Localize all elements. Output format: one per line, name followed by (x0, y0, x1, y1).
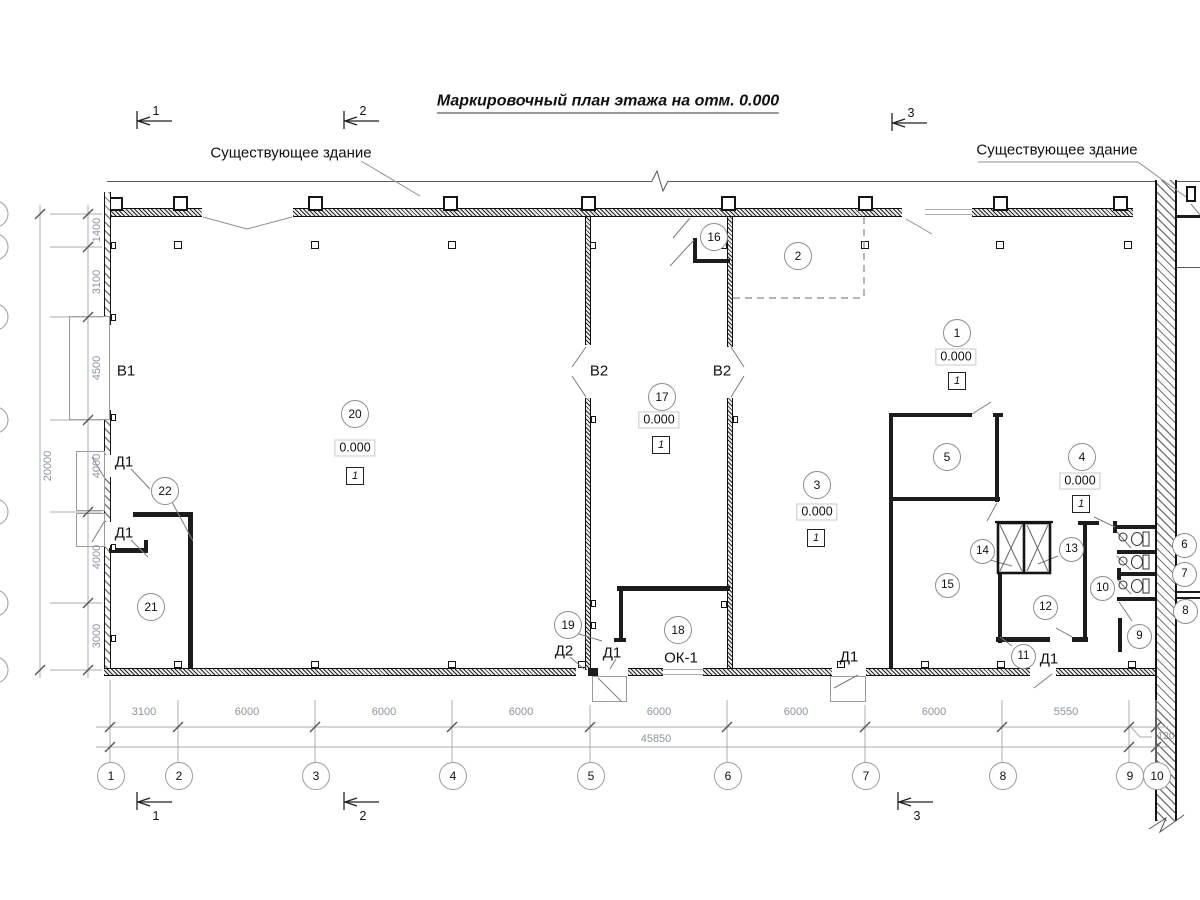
dim-segment: 1400 (91, 218, 103, 242)
room-number-6: 6 (1172, 533, 1197, 558)
pilaster (591, 416, 596, 423)
exterior-recess (69, 316, 110, 420)
wall (1117, 568, 1121, 580)
grid-axis-3: 3 (302, 762, 330, 790)
grid-axis-9: 9 (1116, 762, 1144, 790)
column-mark (109, 197, 123, 211)
pilaster (448, 661, 456, 668)
drawing-title: Маркировочный план этажа на отм. 0.000 (437, 93, 779, 114)
floor-type-mark: 1 (807, 529, 825, 547)
section-number-3-top: 3 (908, 106, 915, 120)
floor-type-mark: 1 (948, 372, 966, 390)
column-mark (993, 196, 1008, 211)
wall (1113, 525, 1155, 529)
wall (144, 540, 148, 553)
door-swings (92, 204, 1200, 701)
grid-axis-4: 4 (439, 762, 467, 790)
dim-segment: 6000 (372, 706, 396, 718)
wall (188, 512, 193, 670)
dim-segment: 4000 (91, 545, 103, 569)
room-number-21: 21 (137, 593, 165, 621)
grid-axis-7: 7 (852, 762, 880, 790)
wall (1117, 597, 1155, 601)
wall (614, 638, 626, 642)
dim-segment: 6000 (922, 706, 946, 718)
wall (104, 545, 111, 675)
dim-segment: 6000 (235, 706, 259, 718)
door-stoop (76, 513, 105, 547)
wall (995, 415, 999, 502)
pilaster (111, 414, 116, 421)
window-line (663, 669, 703, 670)
wall (1083, 525, 1087, 642)
window-label-v2: В2 (713, 363, 731, 380)
grid-axis-10: 10 (1143, 762, 1171, 790)
floor-type-mark: 1 (652, 436, 670, 454)
existing-building-line (107, 181, 652, 182)
existing-building-label-left: Существующее здание (210, 145, 371, 162)
room-number-19: 19 (554, 611, 582, 639)
wall (1113, 521, 1117, 533)
section-number-1-top: 1 (153, 104, 160, 118)
wall (619, 591, 623, 642)
window-label-v1: В1 (117, 363, 135, 380)
room-number-5: 5 (933, 443, 961, 471)
room-number-10: 10 (1090, 576, 1115, 601)
wall (703, 668, 832, 676)
pilaster (111, 544, 116, 551)
column-mark (174, 241, 182, 249)
wall (1117, 572, 1155, 576)
wc-fixtures (1119, 532, 1149, 593)
door-label-d1: Д1 (603, 645, 622, 662)
wall (1117, 550, 1155, 554)
window-label-ok1: ОК-1 (664, 650, 698, 667)
pilaster (590, 242, 596, 249)
elevation-mark: 0.000 (638, 412, 679, 429)
room-number-16: 16 (700, 223, 728, 251)
column-mark (311, 241, 319, 249)
dim-wall-offset: 120 (1157, 730, 1175, 742)
column-mark (861, 241, 869, 249)
wall (104, 668, 576, 676)
dim-segment: 3100 (91, 270, 103, 294)
wall (588, 668, 598, 676)
section-number-1-bottom: 1 (153, 809, 160, 823)
room-number-8: 8 (1173, 599, 1198, 624)
pilaster (111, 242, 116, 249)
wall (889, 413, 893, 670)
wall (628, 668, 663, 676)
wall (693, 259, 730, 263)
floorplan-sheet: Маркировочный план этажа на отм. 0.000 С… (0, 0, 1200, 900)
window-line (925, 214, 972, 215)
wall (104, 192, 111, 325)
pilaster (733, 416, 738, 423)
dim-segment: 4500 (91, 356, 103, 380)
door-jamb (1186, 186, 1196, 202)
door-stoop (592, 676, 627, 702)
pilaster (311, 661, 319, 668)
pilaster (1128, 661, 1136, 668)
existing-building-wall (1155, 180, 1177, 821)
wall (293, 208, 902, 217)
dim-segment: 5550 (1054, 706, 1078, 718)
wall (1177, 215, 1200, 218)
vent-shafts (995, 522, 1053, 573)
room-number-3: 3 (803, 471, 831, 499)
wall (1177, 591, 1200, 593)
dim-segment: 3000 (91, 624, 103, 648)
grid-axis-1: 1 (97, 762, 125, 790)
dim-segment: 6000 (509, 706, 533, 718)
column-mark (721, 196, 736, 211)
section-number-3-bottom: 3 (914, 809, 921, 823)
grid-axis-6: 6 (714, 762, 742, 790)
pilaster (174, 661, 182, 668)
room-number-17: 17 (648, 383, 676, 411)
elevation-mark: 0.000 (334, 440, 375, 457)
pilaster (111, 314, 116, 321)
grid-axis-2: 2 (165, 762, 193, 790)
wall (133, 512, 192, 517)
wall (104, 477, 111, 522)
room-number-20: 20 (341, 400, 369, 428)
existing-building-line (668, 181, 1200, 182)
dim-segment: 6000 (647, 706, 671, 718)
door-label-d1: Д1 (115, 525, 134, 542)
left-grid-bubbles (0, 201, 8, 683)
wall (617, 586, 730, 591)
wall (1056, 668, 1155, 676)
room-number-4: 4 (1068, 443, 1096, 471)
door-label-d1: Д1 (840, 649, 859, 666)
column-mark (1113, 196, 1128, 211)
column-mark (996, 241, 1004, 249)
elevation-mark: 0.000 (1059, 473, 1100, 490)
grid-axis-8: 8 (989, 762, 1017, 790)
floor-type-mark: 1 (346, 467, 364, 485)
room-number-18: 18 (664, 616, 692, 644)
elevation-mark: 0.000 (935, 349, 976, 366)
grid-axis-5: 5 (577, 762, 605, 790)
wall (1118, 618, 1122, 652)
pilaster (921, 661, 929, 668)
wall (996, 637, 1050, 642)
pilaster (111, 635, 116, 642)
leader-lines (203, 161, 1186, 234)
wall (889, 413, 972, 417)
wall-line (1177, 267, 1200, 268)
pilaster (591, 600, 596, 607)
wall (585, 398, 591, 670)
wall (1078, 521, 1099, 525)
column-mark (308, 196, 323, 211)
room-number-2: 2 (784, 242, 812, 270)
dim-segment: 3100 (132, 706, 156, 718)
door-label-d1: Д1 (1040, 651, 1059, 668)
column-mark (581, 196, 596, 211)
existing-building-label-right: Существующее здание (976, 142, 1137, 159)
pilaster (578, 661, 586, 668)
dim-segment: 4000 (91, 454, 103, 478)
column-mark (858, 196, 873, 211)
floor-type-mark: 1 (1072, 495, 1090, 513)
door-label-d2: Д2 (555, 643, 574, 660)
room-number-14: 14 (970, 539, 995, 564)
room-number-7: 7 (1172, 562, 1197, 587)
window-line (663, 674, 703, 675)
room-number-1: 1 (943, 319, 971, 347)
room-number-13: 13 (1059, 537, 1084, 562)
pilaster (997, 661, 1005, 668)
column-mark (1124, 241, 1132, 249)
dim-segment: 6000 (784, 706, 808, 718)
wall (585, 217, 591, 345)
column-mark (443, 196, 458, 211)
room-number-11: 11 (1011, 644, 1036, 669)
room-number-12: 12 (1033, 595, 1058, 620)
pilaster (591, 622, 596, 629)
column-mark (448, 241, 456, 249)
door-stoop (830, 676, 866, 702)
elevation-mark: 0.000 (796, 504, 837, 521)
wall (998, 572, 1002, 643)
section-number-2-top: 2 (360, 104, 367, 118)
wall (866, 668, 1030, 676)
dim-total: 20000 (42, 451, 54, 482)
door-label-d1: Д1 (115, 454, 134, 471)
room-number-15: 15 (935, 573, 960, 598)
window-line (925, 209, 972, 210)
wall (890, 497, 1000, 501)
section-number-2-bottom: 2 (360, 809, 367, 823)
room-number-9: 9 (1127, 624, 1152, 649)
room-number-22: 22 (151, 477, 179, 505)
wall (727, 398, 733, 670)
pilaster (721, 601, 727, 608)
column-mark (173, 196, 188, 211)
dim-total: 45850 (641, 733, 672, 745)
window-label-v2: В2 (590, 363, 608, 380)
